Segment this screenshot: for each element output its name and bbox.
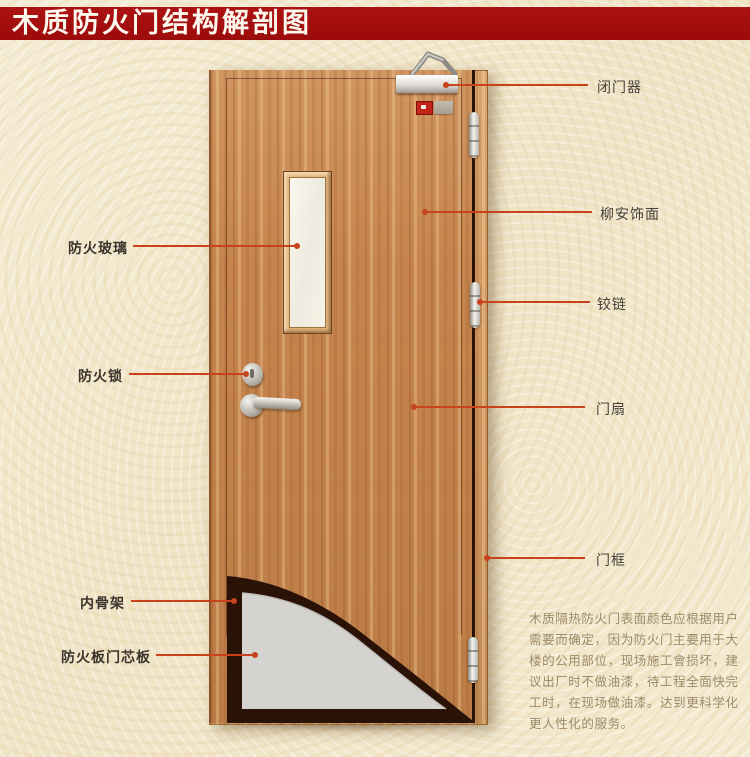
hinge-top	[469, 112, 479, 158]
leader-door-closer	[445, 84, 588, 86]
door-panel-groove	[226, 78, 462, 635]
leader-fire-core-panel	[156, 654, 256, 656]
infographic-canvas: 木质防火门结构解剖图 防火玻璃 防火锁 内骨架 防火板门芯板 闭门器	[0, 0, 750, 757]
description-line: 需要而确定，因为防火门主要用于大	[529, 629, 729, 650]
label-hinge: 铰链	[597, 294, 627, 314]
door-closer-plate	[434, 101, 453, 114]
label-door-closer: 闭门器	[597, 77, 642, 97]
label-fire-lock: 防火锁	[20, 366, 123, 386]
core-panel-shape	[242, 593, 446, 709]
leader-veneer	[424, 211, 592, 213]
description-line: 议出厂时不做油漆，待工程全面快完	[529, 671, 729, 692]
leader-door-leaf	[413, 406, 585, 408]
leader-hinge	[479, 301, 590, 303]
title-bar: 木质防火门结构解剖图	[0, 7, 750, 40]
cutaway-core-illustration	[210, 570, 476, 725]
label-fire-core-panel: 防火板门芯板	[3, 647, 151, 667]
leader-fire-lock	[129, 373, 247, 375]
leader-door-frame	[486, 557, 585, 559]
page-title: 木质防火门结构解剖图	[0, 7, 750, 39]
label-door-leaf: 门扇	[596, 399, 626, 419]
description-line: 工时，在现场做油漆。达到更科学化	[529, 692, 729, 713]
description-line: 木质隔热防火门表面颜色应根据用户	[529, 608, 729, 629]
description-paragraph: 木质隔热防火门表面颜色应根据用户 需要而确定，因为防火门主要用于大 楼的公用部位…	[529, 608, 729, 734]
label-fire-glass: 防火玻璃	[20, 238, 128, 258]
fire-glass-pane	[289, 177, 326, 328]
label-inner-frame: 内骨架	[20, 593, 125, 613]
door-closer-red-indicator	[416, 101, 433, 115]
hinge-middle	[470, 282, 480, 328]
description-line: 更人性化的服务。	[529, 713, 729, 734]
label-veneer: 柳安饰面	[600, 204, 660, 224]
fire-glass-window	[283, 171, 332, 334]
leader-inner-frame	[131, 600, 235, 602]
label-door-frame: 门框	[596, 550, 626, 570]
description-line: 楼的公用部位，现场施工會损坏，建	[529, 650, 729, 671]
leader-fire-glass	[133, 245, 298, 247]
